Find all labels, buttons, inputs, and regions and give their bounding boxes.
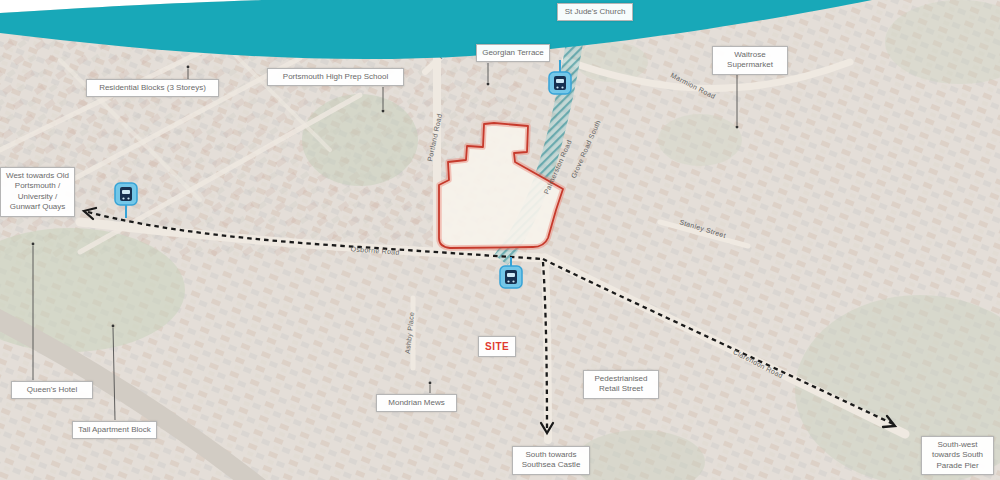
callout-georgian-terrace: Georgian Terrace	[476, 44, 550, 62]
callout-mondrian-mews: Mondrian Mews	[376, 394, 457, 412]
callout-queens-hotel: Queen's Hotel	[11, 381, 93, 399]
callout-south-west-towards: South-west towards South Parade Pier	[921, 436, 994, 475]
callout-prep-school: Portsmouth High Prep School	[267, 68, 404, 86]
callout-site: SITE	[478, 336, 516, 357]
callout-waitrose-supermarket: Waitrose Supermarket	[712, 46, 788, 75]
aerial-map-canvas: Kent Road Marmion Road Portland Road Pal…	[0, 0, 1000, 480]
callout-st-judes-church: St Jude's Church	[557, 3, 633, 21]
callout-tall-apartment-block: Tall Apartment Block	[72, 421, 157, 439]
callout-west-towards: West towards Old Portsmouth / University…	[0, 167, 75, 217]
callout-pedestrianised-retail-street: Pedestrianised Retail Street	[583, 370, 659, 399]
annotated-aerial-map: Kent Road Marmion Road Portland Road Pal…	[0, 0, 1000, 480]
callout-residential-blocks: Residential Blocks (3 Storeys)	[86, 79, 219, 97]
callout-south-towards: South towards Southsea Castle	[512, 446, 590, 475]
